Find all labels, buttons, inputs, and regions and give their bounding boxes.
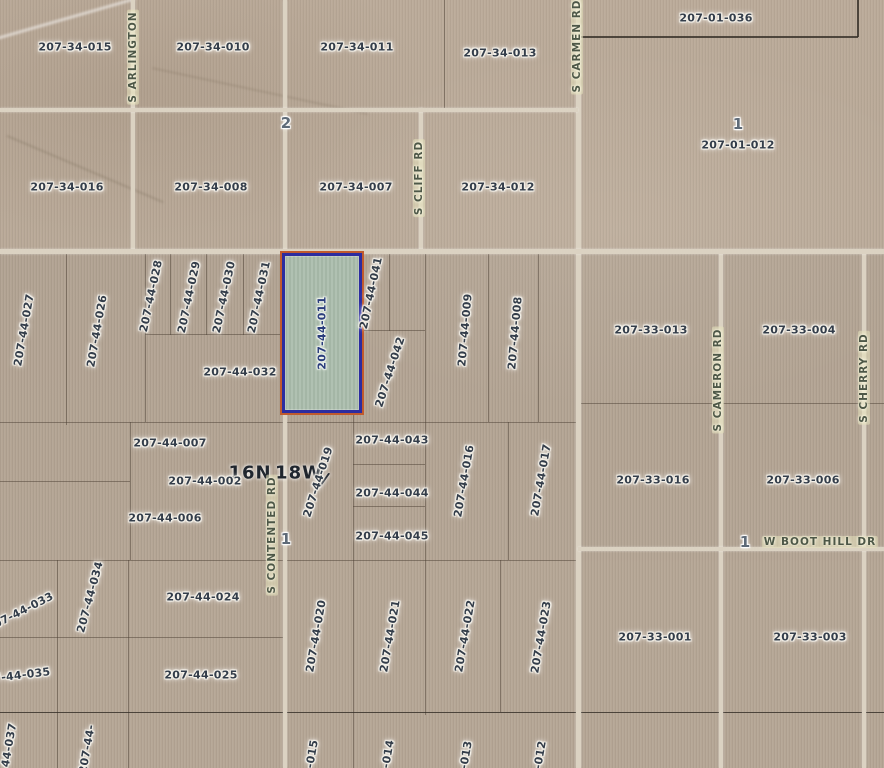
parcel-map-canvas[interactable]: 16N18W/ 207-44-011 207-34-015207-34-0102…	[0, 0, 884, 768]
section-number-marker: 2	[281, 114, 291, 132]
section-number-marker: 1	[281, 530, 291, 548]
section-number-marker: 1	[733, 115, 743, 133]
section-marker-layer: 2111	[0, 0, 884, 768]
section-number-marker: 1	[740, 533, 750, 551]
